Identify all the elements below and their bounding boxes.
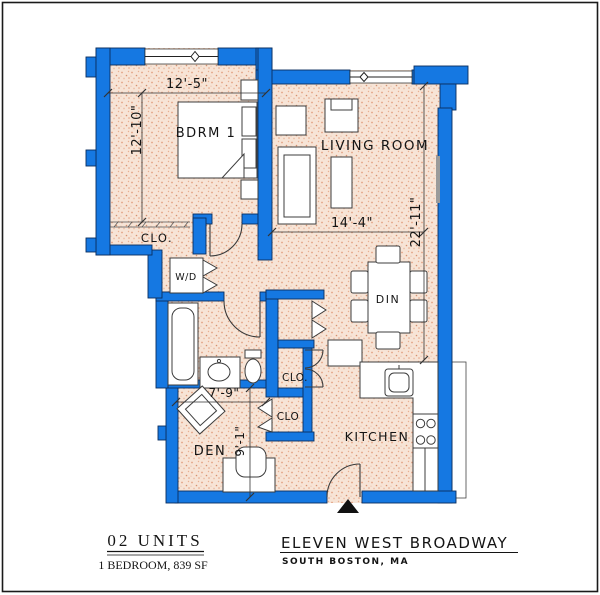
wall-segment [86,238,96,252]
wall-segment [266,290,278,397]
label-dining: DIN [376,293,400,306]
armchair-back [331,99,352,110]
wall-segment [193,218,206,254]
wall-segment [266,432,314,441]
wall-segment [278,340,314,348]
wall-segment [148,250,162,298]
label-linen-closet: CLO. [282,372,308,384]
dim-den-depth: 9'-1" [233,426,247,457]
dim-den-width: 7'-9" [209,386,240,400]
dim-bedroom-width: 12'-5" [166,77,208,92]
dim-living-width: 14'-4" [331,216,373,231]
bathtub-basin [172,308,194,380]
kitchen-table [328,340,362,366]
wall-segment [175,491,327,503]
armchair [276,106,306,135]
burner-icon [416,436,424,444]
floor-plan-drawing: 12'-5" 12'-10" 14'-4" 22'-11" 7'-9" 9'-1… [0,0,600,595]
coffee-table [331,157,352,208]
wall-segment [303,348,312,440]
wall-segment [166,380,178,503]
bath-sink [208,363,230,381]
dining-chair [376,246,400,263]
units-title: 02 UNITS [107,531,202,550]
wall-segment [414,66,468,84]
dim-unit-depth: 22'-11" [409,197,424,248]
dining-chair [351,271,368,293]
toilet-tank [245,350,261,358]
label-den: DEN [194,444,226,459]
living-side-window [436,156,440,203]
wall-segment [438,108,452,503]
unit-type: 1 BEDROOM, 839 SF [98,558,208,572]
label-bedroom-closet: CLO. [141,231,173,245]
title-block: 02 UNITS 1 BEDROOM, 839 SF ELEVEN WEST B… [98,531,518,572]
dining-chair [410,300,427,322]
wall-segment [440,84,456,110]
wall-segment [86,150,96,166]
kitchen-sink-basin [389,373,409,392]
wall-segment [242,214,258,224]
nightstand [241,180,258,199]
building-name: ELEVEN WEST BROADWAY [281,534,508,552]
wall-segment [86,57,96,77]
label-living-room: LIVING ROOM [321,138,429,154]
exterior-shaft [452,362,466,498]
wall-segment [156,292,168,388]
faucet-icon [217,359,220,362]
pillow [242,107,256,136]
nightstand [241,80,258,100]
label-washer-dryer: W/D [175,272,196,283]
floor-plan-sheet: 12'-5" 12'-10" 14'-4" 22'-11" 7'-9" 9'-1… [0,0,600,595]
burner-icon [416,419,424,427]
label-kitchen: KITCHEN [345,429,410,444]
building-location: SOUTH BOSTON, MA [282,557,409,567]
wall-segment [258,48,272,260]
wall-segment [158,426,166,440]
toilet [245,359,261,383]
wall-segment [96,48,110,255]
dining-chair [351,300,368,322]
label-den-closet: CLO [277,411,300,423]
dining-chair [376,332,400,349]
wall-segment [362,491,456,503]
wall-segment [266,290,324,299]
wall-segment [278,388,305,397]
dim-bedroom-depth: 12'-10" [130,105,145,156]
sofa-cushion [284,155,310,217]
burner-icon [427,436,435,444]
burner-icon [427,419,435,427]
dining-chair [410,271,427,293]
label-bedroom: BDRM 1 [176,126,237,141]
